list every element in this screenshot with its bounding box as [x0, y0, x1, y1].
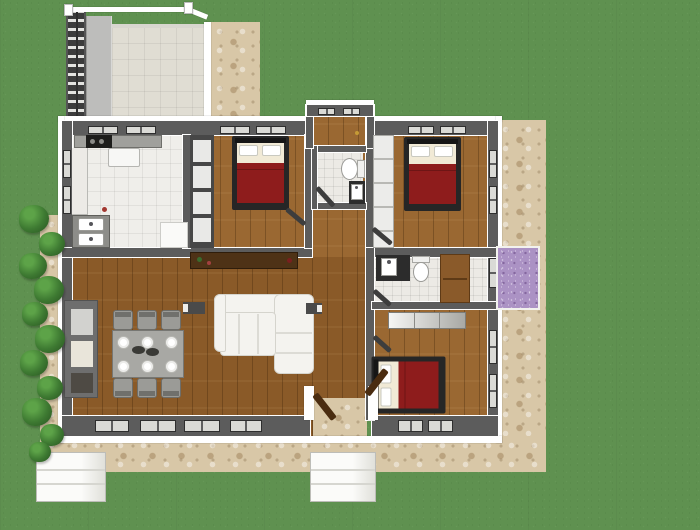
vanity-line — [443, 278, 467, 280]
window — [343, 108, 360, 115]
wall-speaker-left — [183, 302, 205, 314]
window — [63, 150, 71, 178]
sofa-seam — [238, 314, 240, 354]
kitchen-left-counter — [72, 148, 88, 215]
closet-panel — [193, 218, 211, 242]
window — [489, 186, 497, 214]
window — [95, 420, 129, 432]
place-setting-plate — [165, 336, 178, 349]
hedge-bush — [19, 253, 47, 279]
bedroom3-dresser — [388, 312, 466, 329]
window — [230, 420, 262, 432]
dining-chair — [161, 310, 181, 330]
hedge-bush — [20, 350, 48, 376]
flower-bed — [496, 246, 540, 310]
toilet-bowl — [413, 262, 429, 282]
bed-blanket — [409, 164, 456, 204]
closet-panel — [193, 140, 211, 162]
vestibule-band — [307, 105, 373, 116]
deck-post — [64, 4, 73, 16]
fruit-on-floor — [102, 207, 107, 212]
toilet-bowl — [341, 158, 358, 180]
speaker-cap — [317, 305, 322, 312]
pillow — [411, 146, 430, 157]
dining-chair — [161, 378, 181, 398]
dining-chair — [113, 310, 133, 330]
pillow — [239, 145, 258, 156]
deck-railing — [70, 7, 188, 12]
hedge-bush — [19, 205, 49, 233]
bathroom1-wall-left — [312, 146, 317, 209]
outer-trim-bottom — [58, 436, 502, 443]
pergola-lattice — [66, 10, 86, 126]
stove-burner — [90, 139, 95, 144]
deck-patio-tiles — [112, 24, 206, 124]
sink-faucet — [89, 237, 93, 241]
place-setting-plate — [117, 360, 130, 373]
serving-dish — [132, 346, 145, 354]
closet-panel — [193, 192, 211, 214]
window — [428, 420, 453, 432]
hedge-bush — [22, 302, 48, 326]
window — [489, 330, 497, 364]
sofa-arm — [214, 294, 226, 352]
decor-item — [287, 258, 292, 263]
dining-chair — [137, 378, 157, 398]
wall-top-right — [370, 121, 498, 135]
window — [256, 126, 286, 134]
bath-vanity-cabinet — [440, 254, 470, 303]
bedroom1-closet — [190, 135, 214, 248]
sofa-seam — [257, 314, 259, 354]
firebox — [71, 373, 93, 393]
bedroom3-bed-wrap — [371, 356, 445, 413]
bedroom3-bed — [371, 356, 445, 413]
window — [440, 126, 466, 134]
window — [408, 126, 434, 134]
toilet-tank — [357, 160, 365, 178]
window — [220, 126, 250, 134]
window — [489, 150, 497, 178]
back-door-handle — [355, 131, 359, 135]
deck-post — [184, 2, 193, 14]
speaker-cap — [183, 304, 188, 312]
fridge — [108, 148, 140, 167]
dresser-divider — [439, 313, 440, 328]
window — [63, 186, 71, 214]
window — [318, 108, 335, 115]
place-setting-plate — [141, 360, 154, 373]
deck-right-trim — [204, 22, 211, 124]
window — [88, 126, 118, 134]
hedge-bush — [37, 376, 63, 400]
bathroom1-wall-top — [312, 146, 366, 152]
window — [184, 420, 220, 432]
floor-plan-scene — [0, 0, 700, 530]
decor-item — [207, 261, 211, 265]
dining-chair — [113, 378, 133, 398]
deck-wall-band — [86, 16, 112, 128]
serving-dish — [146, 348, 159, 356]
place-setting-plate — [117, 336, 130, 349]
pillow — [434, 146, 453, 157]
bedroom1-bed — [232, 136, 289, 210]
sideboard — [190, 252, 298, 269]
shelf — [71, 309, 93, 335]
dining-set — [108, 308, 192, 404]
place-setting-plate — [165, 360, 178, 373]
shelf — [71, 341, 93, 367]
dining-chair — [137, 310, 157, 330]
window — [398, 420, 423, 432]
pillow — [262, 145, 281, 156]
bed-blanket — [237, 163, 284, 203]
hedge-bush — [35, 325, 65, 353]
wall-bedroom1-hall — [305, 135, 312, 248]
hedge-bush — [34, 276, 64, 304]
stove-burner — [99, 139, 104, 144]
wall-speaker-right — [306, 303, 322, 314]
sofa-seam — [276, 332, 312, 334]
sink-faucet — [89, 222, 93, 226]
dresser-divider — [414, 313, 415, 328]
hedge-bush — [39, 232, 65, 256]
bedroom2-bed — [404, 137, 461, 211]
bathroom1-faucet — [355, 186, 358, 189]
bed-blanket — [398, 361, 438, 408]
stone-path-top — [208, 22, 260, 124]
planter-box-center — [310, 452, 376, 502]
window — [140, 420, 176, 432]
fireplace-shelving — [64, 300, 98, 398]
window — [489, 374, 497, 408]
kitchen-doorway-threshold — [160, 222, 188, 248]
window — [126, 126, 156, 134]
decor-plant — [197, 257, 202, 262]
bathroom2-faucet — [387, 260, 391, 264]
hedge-bush — [22, 398, 52, 426]
sofa-seat — [220, 312, 276, 356]
pillow — [380, 387, 391, 406]
closet-panel — [193, 166, 211, 188]
sofa-seam — [276, 352, 312, 354]
entry-post-left — [304, 386, 314, 420]
